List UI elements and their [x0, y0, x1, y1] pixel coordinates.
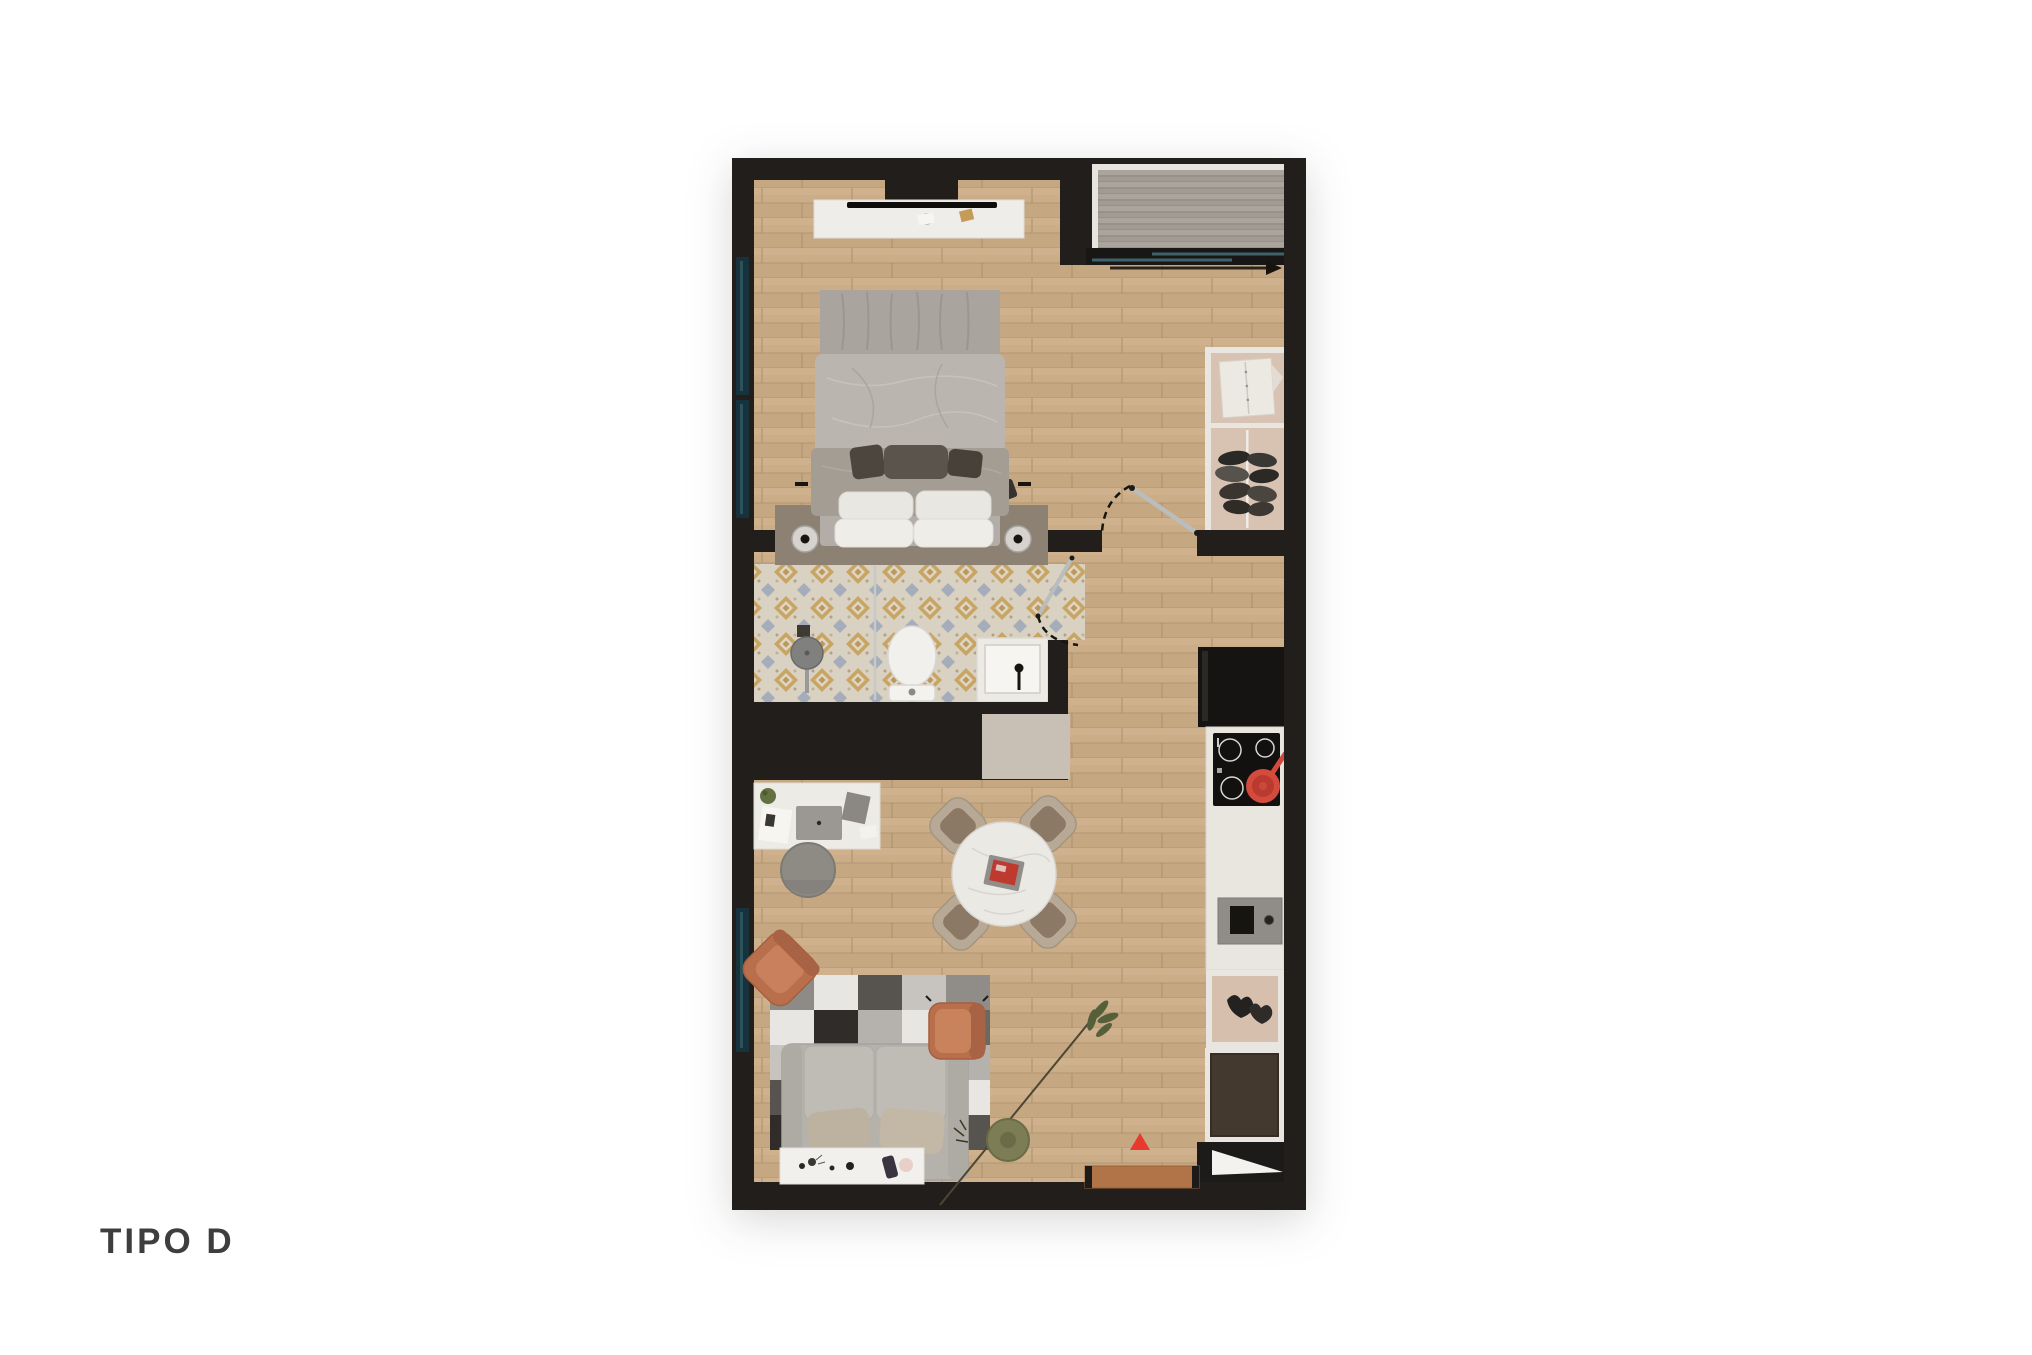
- base-cabinet: [1205, 1048, 1284, 1142]
- window-bedroom: [736, 257, 749, 518]
- cushion: [947, 448, 984, 478]
- washbasin: [977, 638, 1048, 702]
- pillow: [835, 519, 913, 547]
- doormat: [1085, 1166, 1199, 1188]
- sink-unit: [1218, 898, 1282, 944]
- pillow: [914, 519, 993, 547]
- papers: [758, 806, 792, 844]
- pillow: [916, 491, 991, 521]
- desk: [754, 783, 880, 849]
- console-table: [780, 1148, 924, 1184]
- refrigerator: [1198, 647, 1284, 727]
- cooktop: [1213, 733, 1285, 806]
- table-lamp-right: [1005, 526, 1031, 552]
- floor-plan: [732, 158, 1306, 1210]
- plan-title: TIPO D: [100, 1222, 235, 1262]
- balcony-deck: [1098, 170, 1294, 250]
- balcony: [1086, 158, 1306, 265]
- tv: [847, 202, 997, 208]
- wardrobe: [1205, 347, 1290, 530]
- tv-wall-pillar: [885, 158, 958, 202]
- seat-cushion: [804, 1046, 874, 1120]
- double-bed: [811, 290, 1009, 547]
- sliding-glass-door: [1086, 248, 1306, 265]
- toilet: [888, 626, 936, 701]
- desk-plant: [760, 788, 776, 804]
- open-shelf: [1206, 970, 1284, 1048]
- cushion: [884, 445, 948, 479]
- folded-blanket: [820, 290, 1000, 354]
- tv-console: [814, 200, 1024, 238]
- bathroom: [754, 564, 1085, 702]
- decor-flowers: [899, 1158, 913, 1172]
- round-dining-table: [952, 822, 1056, 926]
- wardrobe-base: [1197, 530, 1290, 556]
- cushion: [849, 444, 886, 480]
- kitchen: [1197, 647, 1285, 1182]
- pillow: [839, 492, 913, 520]
- window-living: [736, 908, 749, 1052]
- sofa-armrest: [948, 1044, 968, 1180]
- stool: [781, 843, 835, 897]
- table-lamp-left: [792, 526, 818, 552]
- storage-cabinet-beige: [982, 714, 1070, 779]
- sofa-pillow: [806, 1107, 872, 1153]
- service-shaft: [1197, 1142, 1284, 1182]
- armchair-right: [926, 996, 988, 1059]
